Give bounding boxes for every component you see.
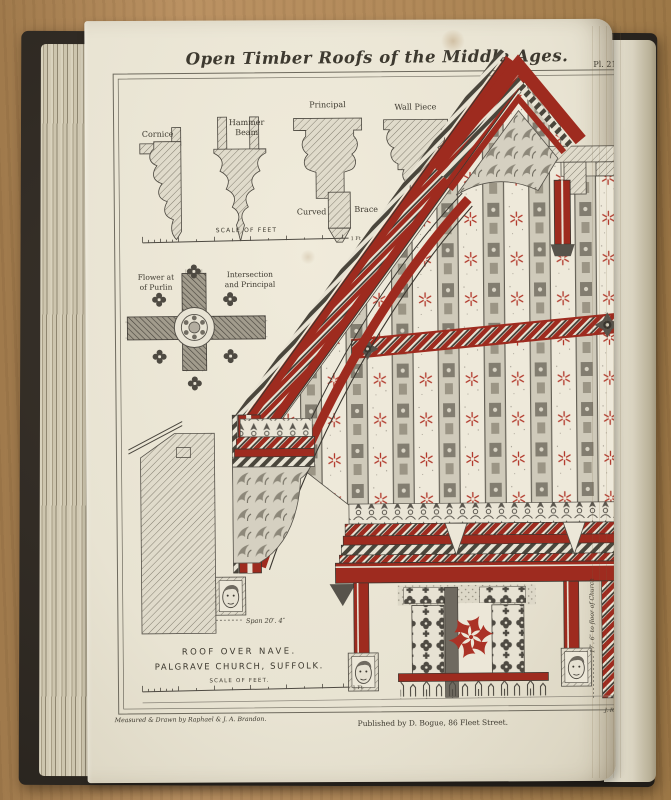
hammer-spandrel-foliage xyxy=(233,466,312,563)
credit-right: J. R. Jobbins, lith. xyxy=(604,707,614,713)
main-roof-section: Span 20′. 4″ 17′. 6″ to floor of Church xyxy=(125,50,614,703)
label-cornice: Cornice xyxy=(142,130,174,139)
label-wall-piece: Wall Piece xyxy=(394,102,436,111)
label-flower-1: Flower at xyxy=(138,273,175,282)
height-annotation: 17′. 6″ to floor of Church xyxy=(589,578,597,653)
label-intersection-1: Intersection xyxy=(227,270,273,279)
label-principal: Principal xyxy=(309,100,346,109)
label-hammer-1: Hammer xyxy=(229,118,265,127)
caption-line2: PALGRAVE CHURCH, SUFFOLK. xyxy=(155,661,324,672)
caption-scale-end: 1 Ft xyxy=(352,685,362,691)
wall-section xyxy=(140,433,216,634)
corbel-head-hammer xyxy=(216,577,246,615)
caption-block: ROOF OVER NAVE. PALGRAVE CHURCH, SUFFOLK… xyxy=(142,646,363,693)
book-photo: Open Timber Roofs of the Middle Ages. Pl… xyxy=(0,0,671,800)
corbel-head-right xyxy=(561,648,591,686)
scale-top-label: SCALE OF FEET xyxy=(216,227,278,235)
scale-top-end: 1 Ft xyxy=(351,236,361,242)
plate-number: Pl. 21. xyxy=(593,60,614,69)
engraved-plate: Open Timber Roofs of the Middle Ages. Pl… xyxy=(86,20,614,782)
label-flower-2: of Purlin xyxy=(140,283,173,292)
caption-line1: ROOF OVER NAVE. xyxy=(182,647,297,658)
credit-center: Published by D. Bogue, 86 Fleet Street. xyxy=(358,718,508,728)
label-hammer-2: Beam xyxy=(235,128,258,137)
caption-scale-label: SCALE OF FEET. xyxy=(209,678,269,685)
credit-left: Measured & Drawn by Raphael & J. A. Bran… xyxy=(114,716,267,724)
label-brace: Brace xyxy=(354,205,378,214)
label-intersection-2: and Principal xyxy=(225,280,276,289)
purlin-detail-labels: Flower at of Purlin Intersection and Pri… xyxy=(138,270,276,292)
span-annotation: Span 20′. 4″ xyxy=(246,617,286,625)
label-curved: Curved xyxy=(297,207,327,216)
